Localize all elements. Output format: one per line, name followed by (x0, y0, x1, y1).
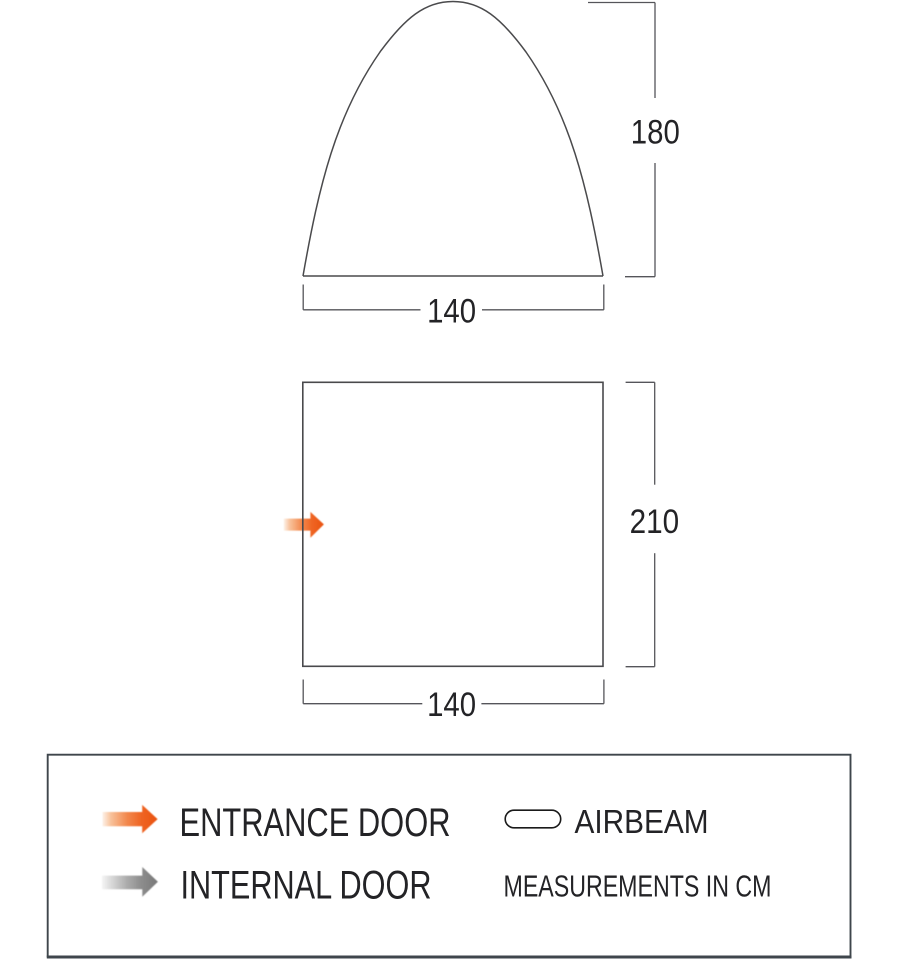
svg-text:MEASUREMENTS IN CM: MEASUREMENTS IN CM (504, 868, 772, 903)
svg-text:140: 140 (427, 686, 476, 724)
svg-text:AIRBEAM: AIRBEAM (575, 804, 709, 841)
svg-text:210: 210 (630, 503, 680, 541)
svg-text:INTERNAL DOOR: INTERNAL DOOR (181, 864, 432, 908)
svg-text:180: 180 (631, 113, 680, 151)
svg-text:140: 140 (427, 293, 476, 331)
svg-text:ENTRANCE DOOR: ENTRANCE DOOR (180, 801, 451, 845)
